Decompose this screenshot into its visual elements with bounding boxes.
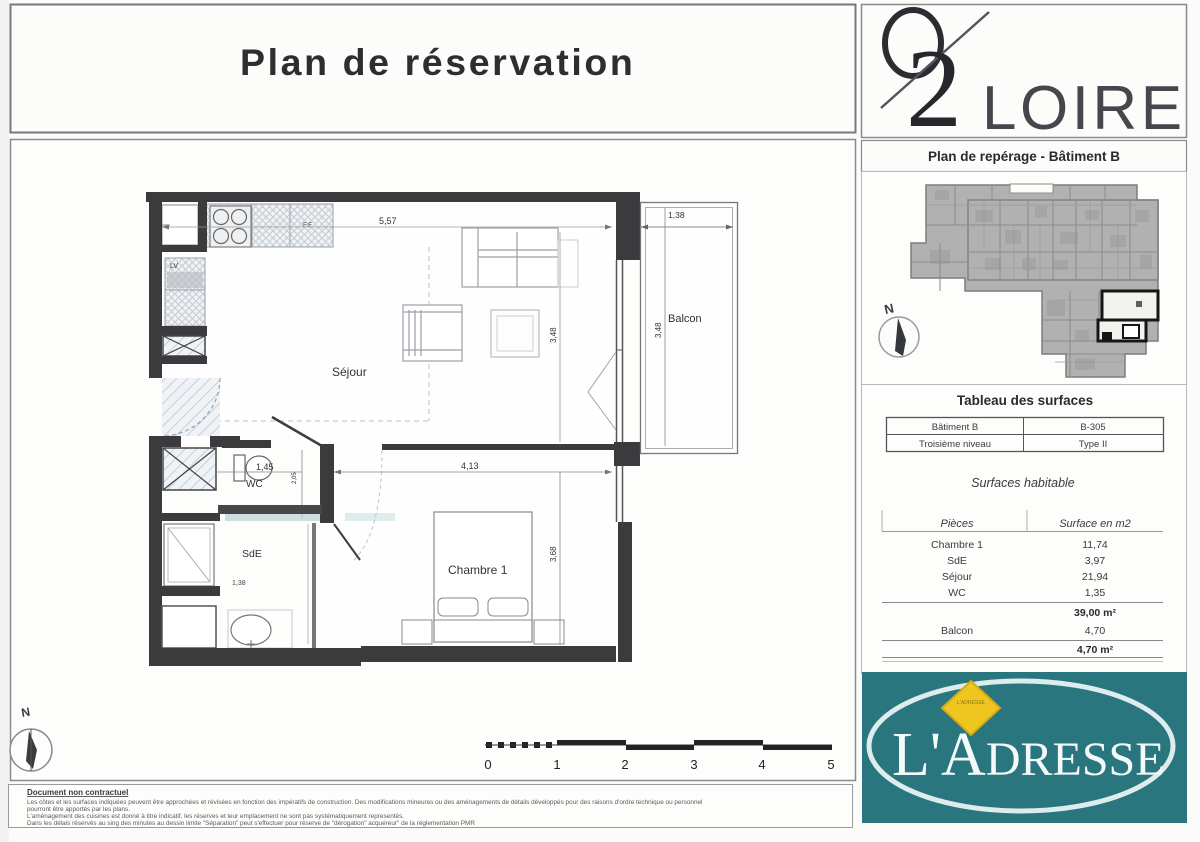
svg-text:Tableau des surfaces: Tableau des surfaces (957, 393, 1093, 408)
svg-text:4,13: 4,13 (461, 461, 479, 471)
svg-text:Balcon: Balcon (941, 625, 973, 637)
svg-text:Chambre 1: Chambre 1 (931, 539, 983, 551)
svg-text:1,38: 1,38 (668, 210, 685, 220)
svg-text:39,00 m²: 39,00 m² (1074, 607, 1117, 619)
svg-text:3,97: 3,97 (1085, 555, 1106, 567)
svg-text:L'aménagement des cuisines est: L'aménagement des cuisines est donné à t… (27, 813, 404, 820)
svg-text:Plan de réservation: Plan de réservation (240, 41, 635, 83)
svg-text:1,45: 1,45 (256, 462, 274, 472)
svg-text:F.E: F.E (303, 222, 313, 229)
svg-text:L'ADRESSE: L'ADRESSE (957, 700, 985, 706)
svg-text:Chambre 1: Chambre 1 (448, 563, 508, 577)
svg-text:5,57: 5,57 (379, 216, 397, 226)
svg-text:Surface en m2: Surface en m2 (1059, 518, 1131, 530)
svg-text:2: 2 (621, 757, 628, 772)
svg-text:4,70 m²: 4,70 m² (1077, 644, 1114, 656)
svg-text:3,68: 3,68 (549, 546, 558, 562)
svg-text:Séjour: Séjour (332, 365, 367, 379)
svg-text:1,38: 1,38 (232, 580, 246, 587)
svg-text:LV: LV (170, 263, 178, 270)
svg-text:LOIRE: LOIRE (982, 74, 1186, 143)
svg-text:3: 3 (690, 757, 697, 772)
svg-text:4,70: 4,70 (1085, 625, 1106, 637)
svg-text:Séjour: Séjour (942, 571, 973, 583)
svg-text:3,48: 3,48 (654, 322, 663, 338)
svg-text:SdE: SdE (947, 555, 967, 567)
svg-text:Bâtiment B: Bâtiment B (932, 422, 978, 433)
svg-text:1,35: 1,35 (1085, 587, 1106, 599)
svg-text:SdE: SdE (242, 548, 262, 560)
svg-text:11,74: 11,74 (1082, 539, 1108, 551)
svg-text:2,05: 2,05 (292, 472, 298, 484)
svg-text:pourront être apportés par les: pourront être apportés par les plans. (27, 806, 130, 813)
svg-text:WC: WC (948, 587, 966, 599)
svg-text:Les côtes et les surfaces indi: Les côtes et les surfaces indiquées peuv… (27, 799, 702, 806)
svg-text:0: 0 (484, 757, 491, 772)
svg-text:B-305: B-305 (1080, 422, 1105, 433)
svg-text:Plan de repérage - Bâtiment B: Plan de repérage - Bâtiment B (928, 149, 1120, 164)
svg-text:3,48: 3,48 (549, 327, 558, 343)
svg-text:21,94: 21,94 (1082, 571, 1108, 583)
svg-text:Balcon: Balcon (668, 313, 702, 325)
svg-text:4: 4 (758, 757, 765, 772)
svg-text:Document non contractuel: Document non contractuel (27, 788, 128, 797)
svg-text:Surfaces habitable: Surfaces habitable (971, 476, 1075, 490)
svg-text:5: 5 (827, 757, 834, 772)
svg-text:Pièces: Pièces (940, 518, 974, 530)
svg-text:Troisième niveau: Troisième niveau (919, 439, 991, 450)
svg-text:1: 1 (553, 757, 560, 772)
svg-text:2: 2 (906, 27, 962, 151)
svg-text:WC: WC (246, 479, 263, 490)
svg-text:Dans les délais réservés au si: Dans les délais réservés au sing des min… (27, 820, 475, 827)
svg-text:Type II: Type II (1079, 439, 1108, 450)
